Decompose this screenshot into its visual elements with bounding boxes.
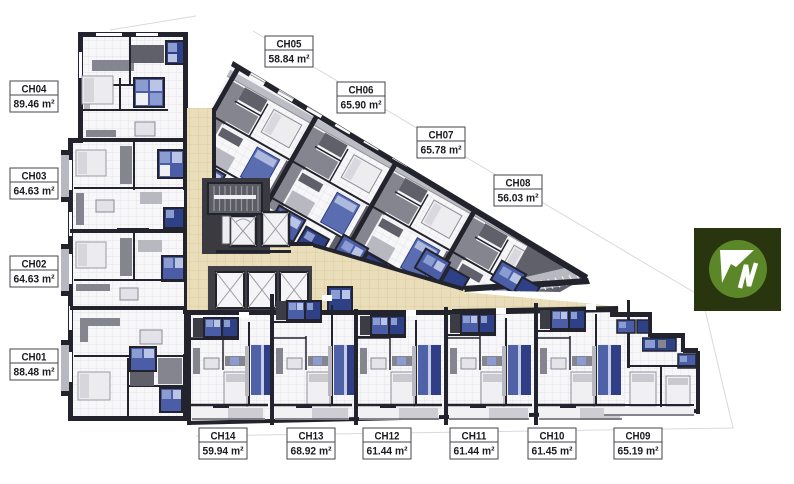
svg-text:65.90 m²: 65.90 m² bbox=[341, 100, 382, 112]
svg-text:64.63 m²: 64.63 m² bbox=[14, 274, 55, 286]
svg-text:CH06: CH06 bbox=[349, 85, 374, 97]
svg-text:CH14: CH14 bbox=[211, 431, 237, 443]
svg-text:61.44 m²: 61.44 m² bbox=[454, 446, 495, 458]
svg-text:58.84 m²: 58.84 m² bbox=[269, 54, 310, 66]
svg-text:56.03 m²: 56.03 m² bbox=[498, 193, 539, 205]
svg-text:59.94 m²: 59.94 m² bbox=[203, 446, 244, 458]
svg-text:61.44 m²: 61.44 m² bbox=[367, 446, 408, 458]
svg-text:61.45 m²: 61.45 m² bbox=[532, 446, 573, 458]
svg-text:65.78 m²: 65.78 m² bbox=[421, 145, 462, 157]
svg-text:88.48 m²: 88.48 m² bbox=[14, 367, 55, 379]
svg-text:CH05: CH05 bbox=[277, 39, 302, 51]
svg-text:CH12: CH12 bbox=[375, 431, 400, 443]
svg-text:89.46 m²: 89.46 m² bbox=[14, 99, 55, 111]
svg-text:CH02: CH02 bbox=[22, 259, 47, 271]
svg-text:CH08: CH08 bbox=[506, 178, 531, 190]
svg-text:CH04: CH04 bbox=[22, 84, 48, 96]
svg-text:CH10: CH10 bbox=[540, 431, 565, 443]
svg-text:CH13: CH13 bbox=[299, 431, 324, 443]
svg-text:65.19 m²: 65.19 m² bbox=[618, 446, 659, 458]
svg-text:68.92 m²: 68.92 m² bbox=[291, 446, 332, 458]
svg-text:CH07: CH07 bbox=[429, 130, 454, 142]
svg-text:CH09: CH09 bbox=[626, 431, 651, 443]
svg-text:64.63 m²: 64.63 m² bbox=[14, 186, 55, 198]
svg-text:CH03: CH03 bbox=[22, 171, 47, 183]
svg-text:CH11: CH11 bbox=[462, 431, 487, 443]
svg-text:CH01: CH01 bbox=[22, 352, 47, 364]
